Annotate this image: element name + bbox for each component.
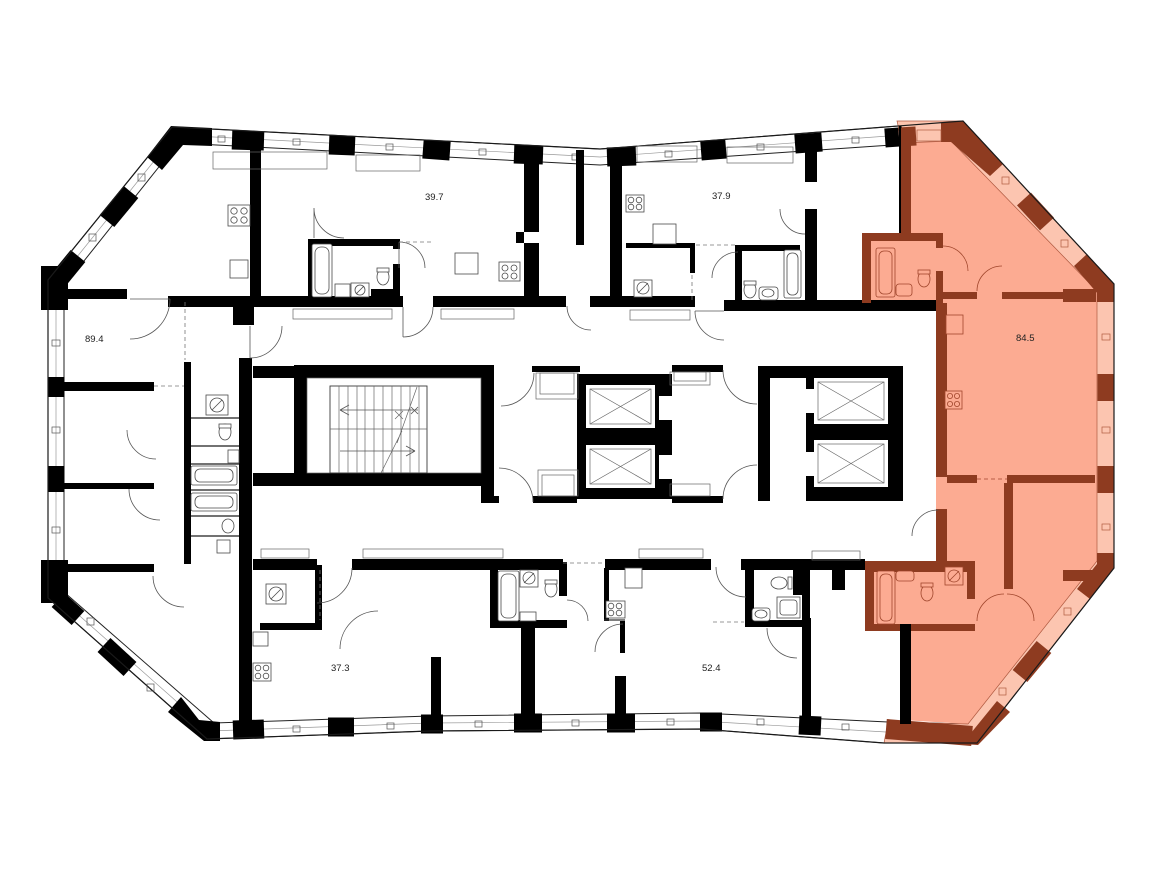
svg-text:52.4: 52.4 [702, 663, 721, 674]
svg-text:89.4: 89.4 [85, 334, 104, 345]
svg-text:39.7: 39.7 [425, 192, 444, 203]
svg-text:84.5: 84.5 [1016, 333, 1035, 344]
svg-text:37.3: 37.3 [331, 663, 350, 674]
svg-text:37.9: 37.9 [712, 191, 731, 202]
